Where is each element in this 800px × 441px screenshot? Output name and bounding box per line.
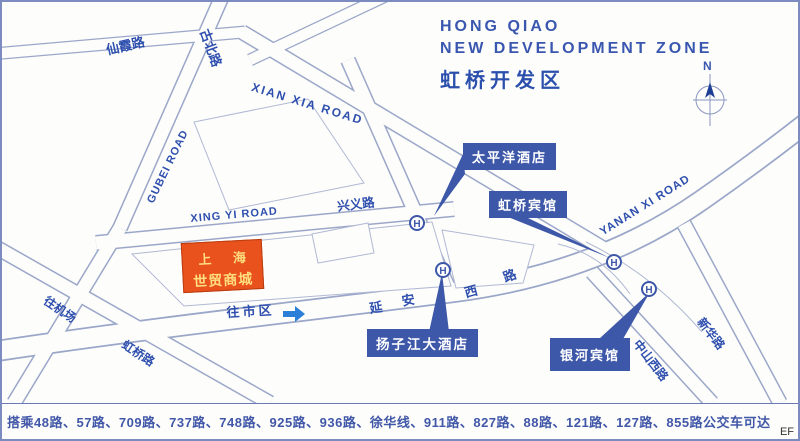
map-title: HONG QIAO NEW DEVELOPMENT ZONE 虹桥开发区 [440,16,712,93]
city-block-east [442,230,534,288]
road-label-yanan-cn-1: 延 [368,296,384,317]
hotel-label-galaxy: 银河宾馆 [550,338,630,371]
landmark-name-line-1: 上 海 [182,246,262,269]
landmark-name-line-2: 世贸商城 [183,268,263,292]
map-area: HONG QIAO NEW DEVELOPMENT ZONE 虹桥开发区 N 仙… [2,2,798,404]
hotel-marker-hongqiao: H [606,254,622,270]
bus-routes-text: 搭乘48路、57路、709路、737路、748路、925路、936路、徐华线、9… [7,412,771,431]
title-line-1: HONG QIAO [440,16,712,38]
title-chinese: 虹桥开发区 [440,64,712,93]
direction-label-to-city: 往市区 [226,299,275,320]
hotel-marker-yangtze: H [435,262,451,278]
shanghai-mart-landmark: 上 海 世贸商城 [181,239,265,293]
hotel-label-pacific: 太平洋酒店 [463,143,556,170]
hotel-label-yangtze: 扬子江大酒店 [367,329,478,357]
hotel-marker-pacific: H [409,215,425,231]
hotel-marker-galaxy: H [641,281,657,297]
title-line-2: NEW DEVELOPMENT ZONE [440,38,712,60]
road-top-diagonal-fill [250,2,394,60]
footer-strip: 搭乘48路、57路、709路、737路、748路、925路、936路、徐华线、9… [2,404,798,439]
corner-mark: EF [780,426,794,438]
hotel-label-hongqiao: 虹桥宾馆 [489,191,567,218]
compass-north-label: N [703,59,712,73]
road-xinhua-fill [684,224,780,403]
map-screenshot: HONG QIAO NEW DEVELOPMENT ZONE 虹桥开发区 N 仙… [0,0,800,441]
